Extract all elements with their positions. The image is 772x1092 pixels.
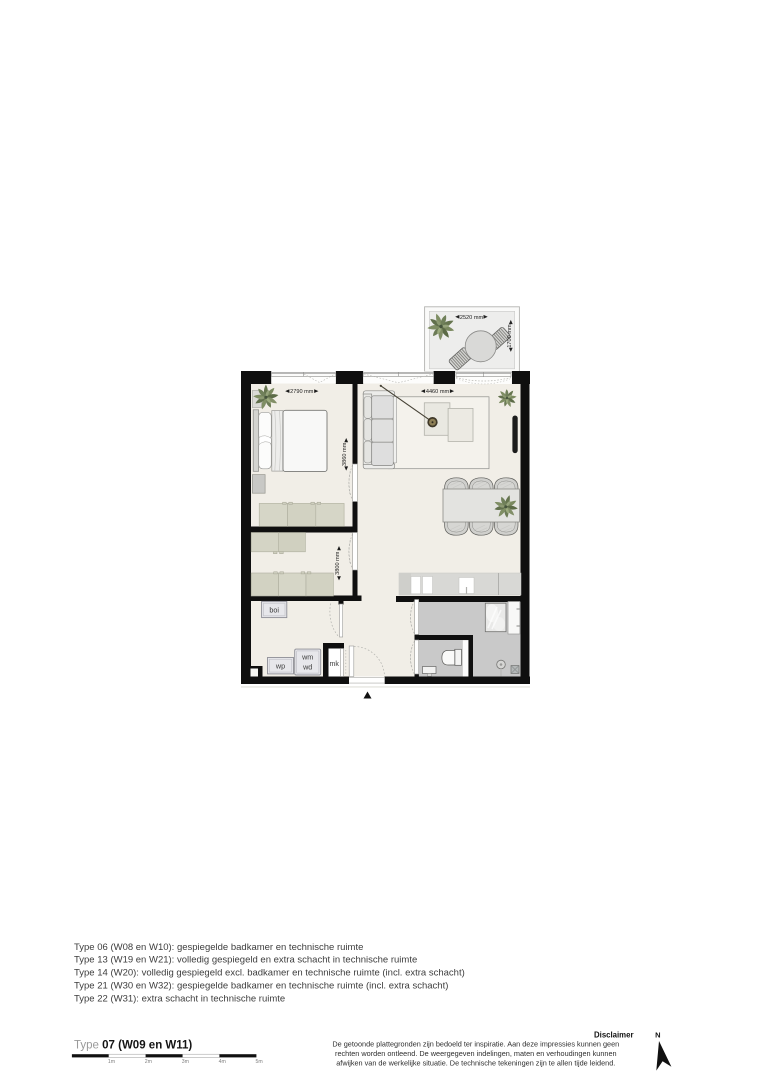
svg-text:2520 mm: 2520 mm xyxy=(460,315,484,321)
svg-text:N: N xyxy=(655,1031,660,1040)
svg-text:Type 14 (W20): volledig gespie: Type 14 (W20): volledig gespiegeld excl.… xyxy=(74,968,465,979)
svg-text:1700 mm: 1700 mm xyxy=(507,324,513,348)
svg-text:3800 mm: 3800 mm xyxy=(335,551,341,575)
svg-text:De getoonde plattegronden zijn: De getoonde plattegronden zijn bedoeld t… xyxy=(332,1040,619,1049)
svg-text:Type 21 (W30 en W32): gespiege: Type 21 (W30 en W32): gespiegelde badkam… xyxy=(74,981,448,992)
svg-text:Type 07 (W09 en W11): Type 07 (W09 en W11) xyxy=(74,1039,192,1051)
svg-text:4460 mm: 4460 mm xyxy=(426,389,450,395)
svg-text:2m: 2m xyxy=(145,1059,152,1065)
svg-text:wm: wm xyxy=(301,653,313,662)
svg-text:wd: wd xyxy=(302,662,312,671)
svg-text:boi: boi xyxy=(269,605,279,614)
svg-text:Disclaimer: Disclaimer xyxy=(594,1031,633,1040)
svg-text:afwijken van de werkelijke sit: afwijken van de werkelijke situatie. De … xyxy=(336,1058,615,1067)
svg-text:3860 mm: 3860 mm xyxy=(342,442,348,466)
svg-text:1m: 1m xyxy=(108,1059,115,1065)
svg-text:rechten worden ontleend. De we: rechten worden ontleend. De weergegeven … xyxy=(335,1049,617,1058)
svg-text:mk: mk xyxy=(330,661,340,668)
svg-text:4m: 4m xyxy=(219,1059,226,1065)
svg-text:Type 13 (W19 en W21): volledig: Type 13 (W19 en W21): volledig gespiegel… xyxy=(74,955,417,966)
svg-text:Type 06 (W08 en W10): gespiege: Type 06 (W08 en W10): gespiegelde badkam… xyxy=(74,942,363,953)
svg-text:Type 22 (W31): extra schacht i: Type 22 (W31): extra schacht in technisc… xyxy=(74,993,285,1004)
svg-text:3m: 3m xyxy=(182,1059,189,1065)
svg-text:wp: wp xyxy=(275,662,285,671)
svg-text:2790 mm: 2790 mm xyxy=(290,389,314,395)
svg-text:5m: 5m xyxy=(255,1059,262,1065)
